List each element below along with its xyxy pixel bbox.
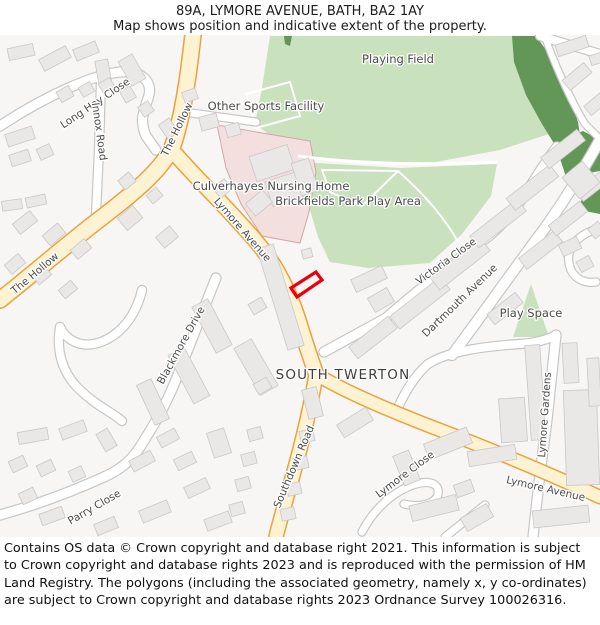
page-title: 89A, LYMORE AVENUE, BATH, BA2 1AY: [0, 4, 600, 19]
map-canvas: Playing FieldOther Sports FacilityCulver…: [0, 35, 600, 537]
label-playing-field: Playing Field: [362, 52, 434, 66]
building: [587, 358, 600, 407]
map: Playing FieldOther Sports FacilityCulver…: [0, 35, 600, 537]
building: [562, 343, 579, 384]
copyright-notice: Contains OS data © Crown copyright and d…: [0, 537, 600, 610]
building: [301, 248, 313, 259]
page-subtitle: Map shows position and indicative extent…: [0, 19, 600, 34]
label-culverhayes-nursing-home: Culverhayes Nursing Home: [193, 179, 350, 193]
building: [498, 397, 527, 443]
header: 89A, LYMORE AVENUE, BATH, BA2 1AY Map sh…: [0, 0, 600, 35]
label-brickfields-park-play-area: Brickfields Park Play Area: [275, 194, 421, 208]
label-play-space: Play Space: [500, 306, 563, 320]
label-other-sports-facility: Other Sports Facility: [208, 99, 325, 113]
label-south-twerton: SOUTH TWERTON: [276, 367, 411, 383]
